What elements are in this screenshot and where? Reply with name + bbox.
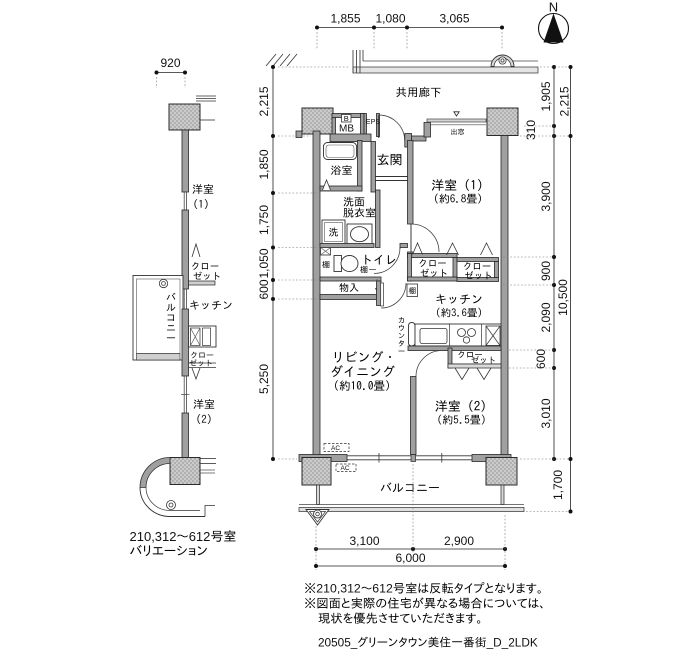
svg-text:EPS: EPS bbox=[366, 117, 381, 126]
svg-text:612: 612 bbox=[372, 582, 393, 596]
svg-text:2,090: 2,090 bbox=[539, 302, 553, 332]
svg-text:1,750: 1,750 bbox=[257, 205, 271, 235]
svg-text:AC: AC bbox=[341, 465, 350, 472]
svg-text:3,065: 3,065 bbox=[439, 12, 469, 26]
svg-text:1,850: 1,850 bbox=[257, 149, 271, 179]
svg-text:210,312: 210,312 bbox=[130, 529, 177, 544]
svg-text:1,080: 1,080 bbox=[375, 12, 405, 26]
svg-text:310: 310 bbox=[524, 120, 538, 140]
svg-text:2,215: 2,215 bbox=[257, 86, 271, 116]
svg-text:B: B bbox=[344, 114, 349, 123]
svg-text:MB: MB bbox=[339, 123, 354, 134]
svg-text:3,900: 3,900 bbox=[539, 181, 553, 211]
svg-text:6,000: 6,000 bbox=[395, 551, 425, 565]
svg-text:1,855: 1,855 bbox=[330, 12, 360, 26]
svg-text:3,010: 3,010 bbox=[539, 398, 553, 428]
svg-text:1,700: 1,700 bbox=[551, 470, 565, 500]
svg-text:612: 612 bbox=[189, 529, 211, 544]
svg-text:10,500: 10,500 bbox=[556, 279, 570, 316]
svg-text:1,905: 1,905 bbox=[539, 81, 553, 111]
svg-text:3,100: 3,100 bbox=[349, 534, 379, 548]
svg-text:1,050: 1,050 bbox=[257, 248, 271, 278]
svg-text:600: 600 bbox=[534, 349, 548, 369]
svg-text:920: 920 bbox=[160, 56, 180, 70]
svg-text:210,312: 210,312 bbox=[316, 582, 361, 596]
svg-text:900: 900 bbox=[539, 261, 553, 281]
svg-text:20505_: 20505_ bbox=[318, 636, 358, 650]
svg-text:AC: AC bbox=[331, 445, 340, 452]
svg-text:600: 600 bbox=[257, 279, 271, 299]
svg-text:2,215: 2,215 bbox=[558, 86, 572, 116]
svg-text:_D_2LDK: _D_2LDK bbox=[486, 636, 538, 650]
svg-text:N: N bbox=[549, 0, 558, 15]
svg-text:5,250: 5,250 bbox=[257, 364, 271, 394]
svg-text:2,900: 2,900 bbox=[444, 534, 474, 548]
